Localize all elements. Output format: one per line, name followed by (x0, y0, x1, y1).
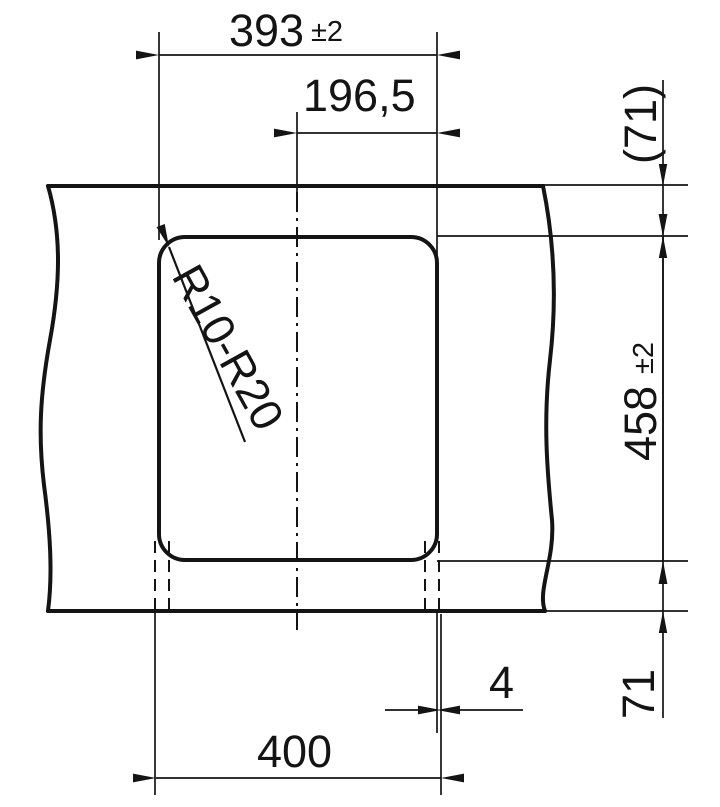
technical-drawing-page: 393 ±2 196,5 (71) 458 ±2 71 4 400 R10-R2… (0, 0, 720, 807)
dimension-labels: 393 ±2 196,5 (71) 458 ±2 71 4 400 R10-R2… (162, 5, 666, 777)
dim-outer-width-label: 400 (257, 726, 332, 777)
dim-cutout-depth-label: 458 (615, 386, 666, 461)
dim-cutout-depth-tolerance: ±2 (628, 342, 660, 374)
worktop-break-line-left (41, 186, 58, 611)
worktop-break-line-right (543, 186, 554, 611)
dim-edge-overlap-label: 4 (489, 657, 514, 708)
dim-cutout-width-tolerance: ±2 (311, 16, 343, 48)
arrowhead-rear-distance-bottom (659, 236, 667, 258)
dim-rear-distance-label: (71) (615, 84, 666, 164)
dim-cutout-width-label: 393 (229, 5, 304, 56)
arrowhead-rear-distance-top (659, 164, 667, 186)
dim-centerline-offset-label: 196,5 (303, 70, 416, 121)
arrowhead-front-distance-bottom (659, 611, 667, 633)
dimension-lines (156, 55, 667, 778)
corner-radius-label: R10-R20 (162, 256, 294, 438)
dim-front-distance-label: 71 (613, 669, 664, 719)
sink-cutout-dimension-drawing: 393 ±2 196,5 (71) 458 ±2 71 4 400 R10-R2… (0, 0, 720, 807)
